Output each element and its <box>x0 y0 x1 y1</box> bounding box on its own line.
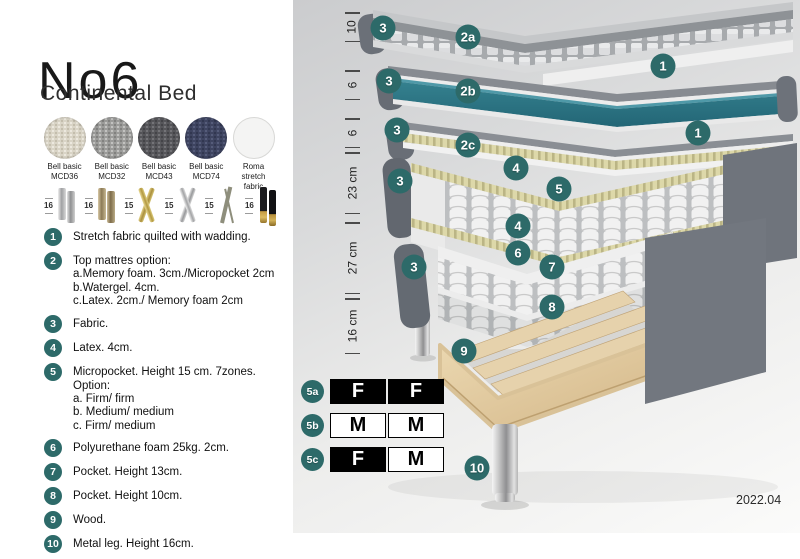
swatch-label: Bell basic <box>189 162 223 171</box>
cylinder-silver-leg-icon <box>55 185 78 227</box>
swatch-mcd74[interactable]: Bell basicMCD74 <box>184 117 229 192</box>
fabric-swatches: Bell basicMCD36 Bell basicMCD32 Bell bas… <box>42 117 276 192</box>
legend-option: b.Watergel. 4cm. <box>73 282 274 296</box>
page-subtitle: Continental Bed <box>40 82 197 106</box>
marker-3-cover: 3 <box>371 16 396 41</box>
legend-text: Polyurethane foam 25kg. 2cm. <box>73 439 229 455</box>
leg-option-6[interactable]: 16 <box>243 183 280 229</box>
leg-height: 16 <box>245 202 254 210</box>
marker-3-lower: 3 <box>402 255 427 280</box>
dimension-10: 10 <box>337 12 367 42</box>
leg-options: 16 16 15 15 15 16 <box>42 183 280 229</box>
fabric-sample-icon <box>185 117 227 159</box>
marker-3-watergel: 3 <box>377 69 402 94</box>
legend-text: Fabric. <box>73 315 108 331</box>
firmness-cell: M <box>388 447 444 472</box>
marker-9: 9 <box>452 339 477 364</box>
firmness-badge: 5c <box>301 448 324 471</box>
swatch-mcd32[interactable]: Bell basicMCD32 <box>89 117 134 192</box>
firmness-cell: F <box>330 379 386 404</box>
crossed-gold-leg-icon <box>135 185 158 227</box>
leg-option-3[interactable]: 15 <box>122 183 159 229</box>
leg-height: 15 <box>205 202 214 210</box>
legend-number-badge: 7 <box>44 463 62 481</box>
info-panel: No6 Continental Bed Bell basicMCD36 Bell… <box>0 0 293 533</box>
legend-item-3: 3 Fabric. <box>44 315 292 333</box>
legend-text: Pocket. Height 13cm. <box>73 463 182 479</box>
swatch-label: Roma <box>243 162 264 171</box>
version-date: 2022.04 <box>736 493 781 507</box>
leg-height: 15 <box>165 202 174 210</box>
legend-item-2: 2 Top mattres option: a.Memory foam. 3cm… <box>44 252 292 309</box>
swatch-label: Bell basic <box>142 162 176 171</box>
firmness-row-5a: 5a F F <box>301 379 444 404</box>
marker-2a: 2a <box>456 25 481 50</box>
legend-option: c.Latex. 2cm./ Memory foam 2cm <box>73 295 274 309</box>
leg-option-2[interactable]: 16 <box>82 183 119 229</box>
swatch-roma[interactable]: Romastretch fabric <box>231 117 276 192</box>
dimension-6b: 6 <box>337 118 367 148</box>
legend-number-badge: 6 <box>44 439 62 457</box>
legend-number-badge: 8 <box>44 487 62 505</box>
legend-option: b. Medium/ medium <box>73 406 292 420</box>
leg-option-4[interactable]: 15 <box>163 183 200 229</box>
marker-2c: 2c <box>456 133 481 158</box>
marker-1-right: 1 <box>686 121 711 146</box>
legend-number-badge: 1 <box>44 228 62 246</box>
leg-height: 16 <box>84 202 93 210</box>
leg-height: 16 <box>44 202 53 210</box>
marker-10: 10 <box>465 456 490 481</box>
layer-legend: 1 Stretch fabric quilted with wadding. 2… <box>44 228 292 559</box>
swatch-label: Bell basic <box>95 162 129 171</box>
legend-option: c. Firm/ medium <box>73 420 292 434</box>
fabric-sample-icon <box>91 117 133 159</box>
marker-1-top: 1 <box>651 54 676 79</box>
firmness-row-5b: 5b M M <box>301 413 444 438</box>
marker-6: 6 <box>506 241 531 266</box>
cylinder-black-gold-leg-icon <box>256 185 279 227</box>
leg-option-5[interactable]: 15 <box>203 183 240 229</box>
legend-text: Wood. <box>73 511 106 527</box>
legend-item-1: 1 Stretch fabric quilted with wadding. <box>44 228 292 246</box>
firmness-cell: M <box>388 413 444 438</box>
fabric-sample-icon <box>44 117 86 159</box>
legend-number-badge: 5 <box>44 363 62 381</box>
legend-text: Top mattres option: <box>73 255 171 267</box>
legend-number-badge: 9 <box>44 511 62 529</box>
hairpin-leg-icon <box>216 185 239 227</box>
floor-shadow <box>388 471 778 503</box>
legend-number-badge: 10 <box>44 535 62 553</box>
product-sheet: No6 Continental Bed Bell basicMCD36 Bell… <box>0 0 800 533</box>
marker-3-block: 3 <box>388 169 413 194</box>
marker-4-bottom: 4 <box>506 214 531 239</box>
fabric-sample-icon <box>233 117 275 159</box>
dimension-16cm: 16 cm <box>337 298 367 354</box>
swatch-label: Bell basic <box>47 162 81 171</box>
legend-item-6: 6 Polyurethane foam 25kg. 2cm. <box>44 439 292 457</box>
legend-item-5: 5 Micropocket. Height 15 cm. 7zones. Opt… <box>44 363 292 434</box>
legend-item-4: 4 Latex. 4cm. <box>44 339 292 357</box>
legend-item-7: 7 Pocket. Height 13cm. <box>44 463 292 481</box>
swatch-mcd36[interactable]: Bell basicMCD36 <box>42 117 87 192</box>
swatch-mcd43[interactable]: Bell basicMCD43 <box>137 117 182 192</box>
legend-item-8: 8 Pocket. Height 10cm. <box>44 487 292 505</box>
firmness-badge: 5b <box>301 414 324 437</box>
side-fabric-panel <box>645 218 766 404</box>
marker-4-top: 4 <box>504 156 529 181</box>
firmness-cell: F <box>388 379 444 404</box>
fabric-sample-icon <box>138 117 180 159</box>
dimension-27cm: 27 cm <box>337 222 367 294</box>
firmness-cell: M <box>330 413 386 438</box>
exploded-bed-diagram: 10 6 6 23 cm 27 cm 16 cm 3 2a 1 3 2b 3 2… <box>293 0 800 533</box>
marker-3-latex: 3 <box>385 118 410 143</box>
legend-number-badge: 4 <box>44 339 62 357</box>
firmness-row-5c: 5c F M <box>301 447 444 472</box>
firmness-cell: F <box>330 447 386 472</box>
legend-text: Metal leg. Height 16cm. <box>73 535 194 551</box>
dimension-6a: 6 <box>337 70 367 100</box>
legend-text: Micropocket. Height 15 cm. 7zones. Optio… <box>73 366 256 392</box>
legend-text: Pocket. Height 10cm. <box>73 487 182 503</box>
legend-number-badge: 2 <box>44 252 62 270</box>
marker-2b: 2b <box>456 79 481 104</box>
legend-item-10: 10 Metal leg. Height 16cm. <box>44 535 292 553</box>
legend-option: a. Firm/ firm <box>73 393 292 407</box>
firmness-badge: 5a <box>301 380 324 403</box>
marker-8: 8 <box>540 295 565 320</box>
legend-option: a.Memory foam. 3cm./Micropocket 2cm <box>73 268 274 282</box>
legend-item-9: 9 Wood. <box>44 511 292 529</box>
legend-number-badge: 3 <box>44 315 62 333</box>
dimension-23cm: 23 cm <box>337 152 367 214</box>
legend-text: Latex. 4cm. <box>73 339 132 355</box>
marker-7: 7 <box>540 255 565 280</box>
legend-text: Stretch fabric quilted with wadding. <box>73 228 251 244</box>
leg-height: 15 <box>124 202 133 210</box>
marker-5: 5 <box>547 177 572 202</box>
leg-option-1[interactable]: 16 <box>42 183 79 229</box>
cylinder-bronze-leg-icon <box>95 185 118 227</box>
crossed-silver-leg-icon <box>176 185 199 227</box>
